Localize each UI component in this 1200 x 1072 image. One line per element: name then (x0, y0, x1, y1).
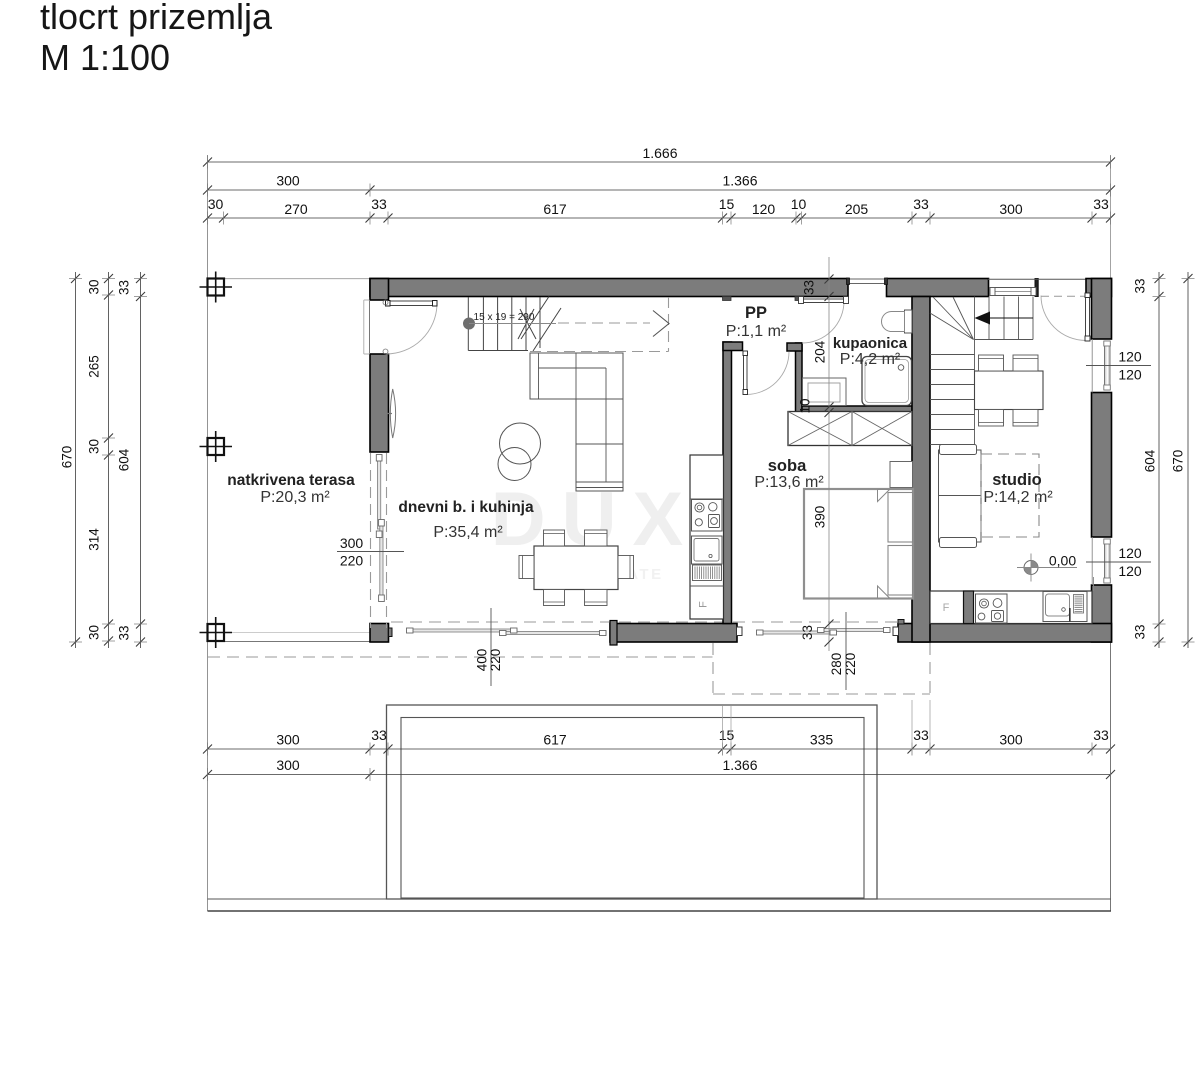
svg-text:33: 33 (1133, 624, 1148, 639)
svg-text:P:4,2 m²: P:4,2 m² (840, 351, 901, 368)
svg-text:F: F (697, 601, 709, 608)
svg-text:1.366: 1.366 (722, 757, 757, 773)
svg-text:33: 33 (913, 727, 929, 743)
svg-text:30: 30 (87, 439, 102, 454)
svg-text:P:14,2 m²: P:14,2 m² (983, 489, 1053, 506)
svg-text:natkrivena terasa: natkrivena terasa (227, 472, 355, 489)
svg-text:0,00: 0,00 (1049, 553, 1076, 569)
svg-text:205: 205 (845, 201, 869, 217)
svg-text:335: 335 (810, 732, 834, 748)
svg-text:33: 33 (117, 280, 132, 295)
svg-text:F: F (943, 602, 950, 614)
svg-text:300: 300 (276, 173, 300, 189)
svg-text:220: 220 (843, 653, 858, 676)
svg-text:617: 617 (543, 732, 567, 748)
svg-text:M 1:100: M 1:100 (40, 37, 170, 78)
svg-text:300: 300 (276, 757, 300, 773)
svg-text:390: 390 (813, 506, 828, 529)
svg-text:P:13,6 m²: P:13,6 m² (754, 474, 824, 491)
svg-text:PP: PP (745, 304, 767, 322)
svg-text:617: 617 (543, 201, 567, 217)
svg-text:280: 280 (829, 653, 844, 676)
svg-text:33: 33 (1133, 278, 1148, 293)
svg-text:314: 314 (87, 528, 102, 551)
svg-text:33: 33 (371, 196, 387, 212)
svg-text:33: 33 (1093, 727, 1109, 743)
svg-text:300: 300 (276, 732, 300, 748)
svg-text:30: 30 (208, 196, 224, 212)
svg-text:10: 10 (798, 398, 813, 413)
svg-text:33: 33 (800, 625, 815, 640)
svg-text:P:20,3 m²: P:20,3 m² (260, 489, 330, 506)
svg-text:204: 204 (813, 340, 828, 363)
svg-text:15 x 19 = 290: 15 x 19 = 290 (474, 312, 535, 323)
svg-text:P:35,4 m²: P:35,4 m² (433, 524, 503, 541)
svg-text:670: 670 (1171, 450, 1186, 473)
svg-text:soba: soba (768, 457, 807, 475)
svg-text:30: 30 (87, 279, 102, 294)
svg-text:300: 300 (340, 535, 364, 551)
svg-text:300: 300 (999, 201, 1023, 217)
svg-text:265: 265 (87, 355, 102, 378)
svg-text:120: 120 (1118, 545, 1142, 561)
svg-text:120: 120 (1118, 349, 1142, 365)
svg-text:120: 120 (1118, 563, 1142, 579)
svg-text:120: 120 (752, 201, 776, 217)
svg-text:1.666: 1.666 (642, 145, 677, 161)
svg-text:670: 670 (60, 446, 75, 469)
svg-text:220: 220 (340, 553, 364, 569)
svg-text:300: 300 (999, 732, 1023, 748)
svg-text:15: 15 (719, 196, 735, 212)
svg-text:220: 220 (488, 649, 503, 672)
svg-text:120: 120 (1118, 367, 1142, 383)
svg-text:10: 10 (791, 196, 807, 212)
svg-text:33: 33 (117, 625, 132, 640)
svg-text:604: 604 (1143, 449, 1158, 472)
svg-text:1.366: 1.366 (722, 173, 757, 189)
svg-text:kupaonica: kupaonica (833, 335, 908, 352)
svg-text:33: 33 (371, 727, 387, 743)
svg-text:tlocrt prizemlja: tlocrt prizemlja (40, 0, 273, 37)
svg-text:33: 33 (1093, 196, 1109, 212)
svg-text:dnevni b. i kuhinja: dnevni b. i kuhinja (398, 499, 534, 516)
svg-text:270: 270 (284, 201, 308, 217)
svg-text:15: 15 (719, 727, 735, 743)
svg-text:33: 33 (802, 280, 817, 295)
svg-text:30: 30 (87, 625, 102, 640)
svg-text:studio: studio (992, 471, 1042, 489)
svg-text:33: 33 (913, 196, 929, 212)
svg-text:P:1,1 m²: P:1,1 m² (726, 323, 787, 340)
svg-text:604: 604 (117, 448, 132, 471)
